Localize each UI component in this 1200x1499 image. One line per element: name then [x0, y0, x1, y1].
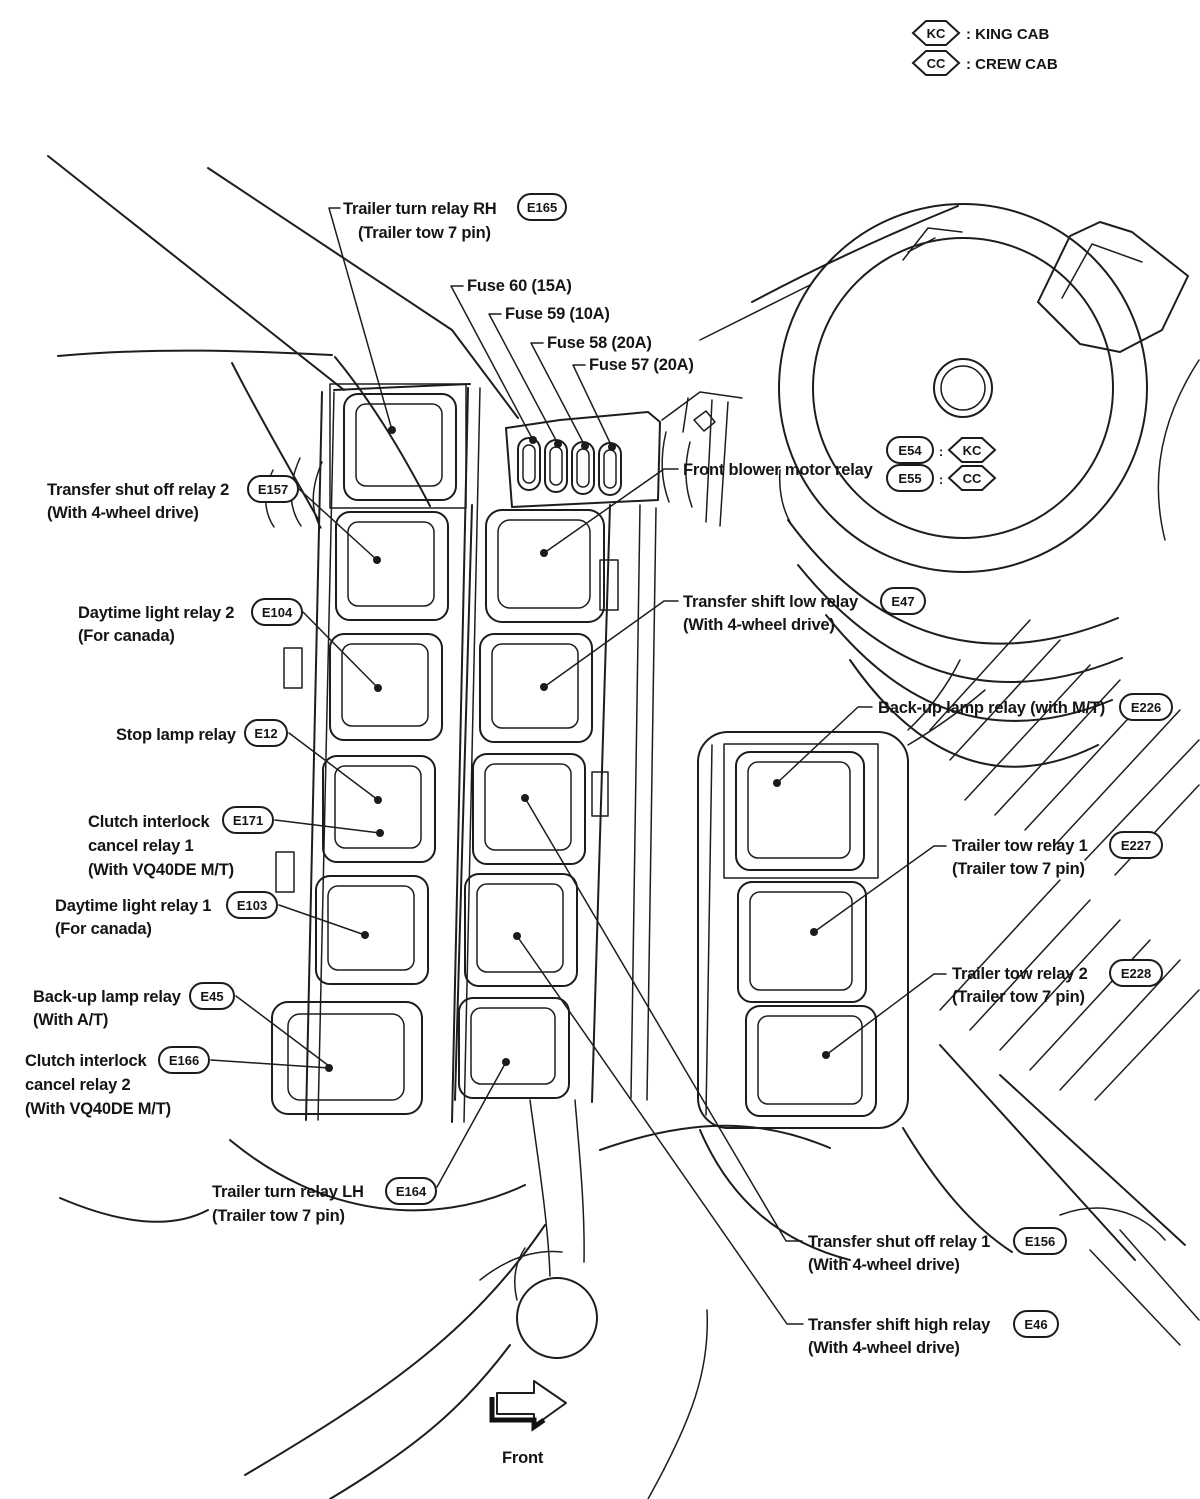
fuse-59-label: Fuse 59 (10A) [505, 305, 610, 323]
connector-badge: E165 [527, 200, 557, 215]
callout-text: (With 4-wheel drive) [683, 616, 835, 634]
variant-hex-badge: CC [963, 471, 982, 486]
callout-clutch-interlock-cancel-relay-1: Clutch interlock E171 cancel relay 1 (Wi… [88, 807, 273, 879]
connector-badge: E54 [898, 443, 922, 458]
engine-bay-line-art: KC : KING CAB CC : CREW CAB Trailer turn… [0, 0, 1200, 1499]
fuse-58-label: Fuse 58 (20A) [547, 334, 652, 352]
callout-text: Daytime light relay 1 [55, 897, 211, 915]
king-cab-label: : KING CAB [966, 26, 1049, 43]
callout-text: Trailer tow relay 2 [952, 965, 1088, 983]
connector-badge: E156 [1025, 1234, 1055, 1249]
callout-transfer-shift-low-relay: Transfer shift low relay E47 (With 4-whe… [683, 588, 925, 634]
legend: KC : KING CAB CC : CREW CAB [913, 21, 1058, 75]
king-cab-badge-text: KC [927, 26, 946, 41]
callout-text: (With VQ40DE M/T) [88, 861, 234, 879]
fuse-57-label: Fuse 57 (20A) [589, 356, 694, 374]
connector-badge: E164 [396, 1184, 427, 1199]
callout-text: Clutch interlock [88, 813, 211, 831]
callout-text: Daytime light relay 2 [78, 604, 234, 622]
badge-separator: : [939, 472, 943, 487]
callout-text: Trailer turn relay LH [212, 1183, 364, 1201]
connector-badge: E45 [200, 989, 223, 1004]
callout-text: (For canada) [78, 627, 175, 645]
callout-text: Trailer tow relay 1 [952, 837, 1088, 855]
connector-badge: E228 [1121, 966, 1151, 981]
callout-transfer-shut-off-relay-2: Transfer shut off relay 2 E157 (With 4-w… [47, 476, 298, 522]
front-arrow-label: Front [502, 1449, 544, 1467]
callout-transfer-shut-off-relay-1: Transfer shut off relay 1 E156 (With 4-w… [808, 1228, 1066, 1274]
connector-badge: E157 [258, 482, 288, 497]
badge-separator: : [939, 444, 943, 459]
callout-text: Transfer shift high relay [808, 1316, 991, 1334]
callout-stop-lamp-relay: Stop lamp relay E12 [116, 720, 287, 746]
callout-text: cancel relay 2 [25, 1076, 130, 1094]
callout-trailer-turn-relay-lh: Trailer turn relay LH E164 (Trailer tow … [212, 1178, 436, 1225]
callout-text: Trailer turn relay RH [343, 200, 497, 218]
variant-hex-badge: KC [963, 443, 982, 458]
callout-daytime-light-relay-2: Daytime light relay 2 E104 (For canada) [78, 599, 302, 645]
callout-text: (With 4-wheel drive) [47, 504, 199, 522]
callout-text: (Trailer tow 7 pin) [212, 1207, 345, 1225]
connector-badge: E171 [233, 813, 263, 828]
callout-text: (With 4-wheel drive) [808, 1256, 960, 1274]
callout-backup-lamp-relay-at: Back-up lamp relay E45 (With A/T) [33, 983, 234, 1029]
callout-text: Front blower motor relay [683, 461, 874, 479]
right-relay-box [698, 732, 908, 1128]
callout-text: Stop lamp relay [116, 726, 237, 744]
fuse-60-label: Fuse 60 (15A) [467, 277, 572, 295]
callout-text: (Trailer tow 7 pin) [952, 988, 1085, 1006]
connector-badge: E47 [891, 594, 914, 609]
callout-text: Back-up lamp relay (with M/T) [878, 699, 1105, 717]
relay-location-diagram: KC : KING CAB CC : CREW CAB Trailer turn… [0, 0, 1200, 1499]
callout-text: (With VQ40DE M/T) [25, 1100, 171, 1118]
connector-badge: E55 [898, 471, 921, 486]
callout-text: Clutch interlock [25, 1052, 148, 1070]
callout-text: (For canada) [55, 920, 152, 938]
callout-trailer-turn-relay-rh: Trailer turn relay RH E165 (Trailer tow … [343, 194, 566, 242]
callout-text: (With 4-wheel drive) [808, 1339, 960, 1357]
front-direction-arrow: Front [492, 1381, 566, 1467]
callout-text: (With A/T) [33, 1011, 108, 1029]
connector-badge: E227 [1121, 838, 1151, 853]
callout-transfer-shift-high-relay: Transfer shift high relay E46 (With 4-wh… [808, 1311, 1058, 1357]
callouts: Trailer turn relay RH E165 (Trailer tow … [25, 194, 1172, 1357]
callout-text: Transfer shut off relay 1 [808, 1233, 990, 1251]
callout-front-blower-motor-relay: Front blower motor relay E54 : KC E55 : … [683, 437, 995, 491]
crew-cab-badge-text: CC [927, 56, 946, 71]
connector-badge: E46 [1024, 1317, 1047, 1332]
callout-fuses: Fuse 60 (15A) Fuse 59 (10A) Fuse 58 (20A… [467, 277, 694, 374]
connector-badge: E226 [1131, 700, 1161, 715]
callout-clutch-interlock-cancel-relay-2: Clutch interlock E166 cancel relay 2 (Wi… [25, 1047, 209, 1118]
callout-text: (Trailer tow 7 pin) [358, 224, 491, 242]
connector-badge: E166 [169, 1053, 199, 1068]
fuse-strip [506, 412, 660, 507]
callout-text: Back-up lamp relay [33, 988, 182, 1006]
callout-text: Transfer shut off relay 2 [47, 481, 229, 499]
callout-trailer-tow-relay-1: Trailer tow relay 1 E227 (Trailer tow 7 … [952, 832, 1162, 878]
connector-badge: E104 [262, 605, 293, 620]
connector-hardware [662, 392, 742, 526]
callout-text: (Trailer tow 7 pin) [952, 860, 1085, 878]
leader-lines [211, 208, 946, 1324]
harness-lines [60, 1100, 1012, 1499]
brake-booster [700, 204, 1199, 767]
connector-badge: E12 [254, 726, 277, 741]
connector-badge: E103 [237, 898, 267, 913]
center-relay-column [455, 505, 656, 1102]
callout-daytime-light-relay-1: Daytime light relay 1 E103 (For canada) [55, 892, 277, 938]
callout-text: cancel relay 1 [88, 837, 193, 855]
callout-text: Transfer shift low relay [683, 593, 859, 611]
callout-trailer-tow-relay-2: Trailer tow relay 2 E228 (Trailer tow 7 … [952, 960, 1162, 1006]
crew-cab-label: : CREW CAB [966, 56, 1058, 73]
